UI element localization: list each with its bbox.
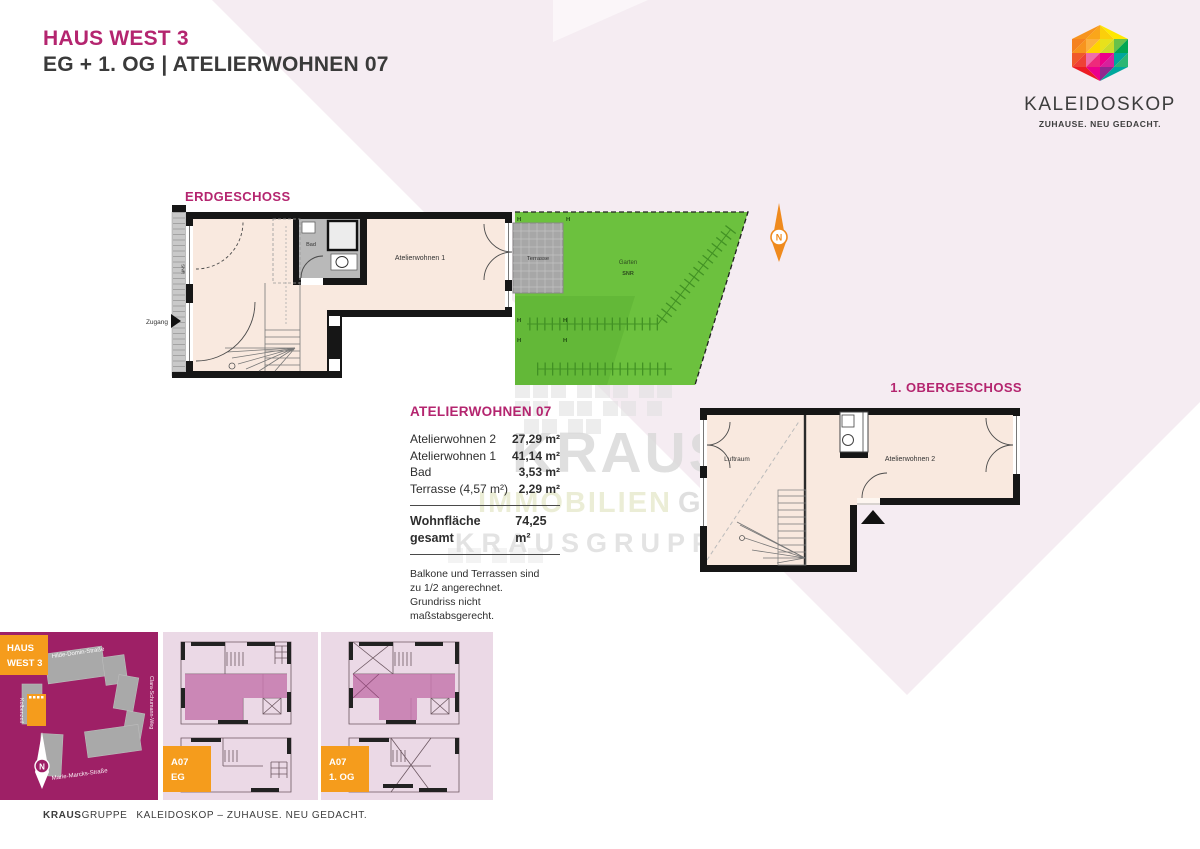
mini-og-badge-line1: A07 bbox=[329, 757, 346, 768]
total-row: Wohnfläche gesamt74,25 m² bbox=[410, 513, 560, 546]
area-table-title: ATELIERWOHNEN 07 bbox=[410, 404, 560, 419]
mini-eg-badge-line1: A07 bbox=[171, 757, 188, 768]
terrace-label: Terrasse bbox=[527, 256, 549, 262]
divider bbox=[410, 505, 560, 506]
room2-label: Atelierwohnen 2 bbox=[885, 456, 935, 463]
svg-text:H: H bbox=[517, 318, 521, 324]
mini-plan-og: A07 1. OG bbox=[321, 632, 493, 800]
row-value: 3,53 m² bbox=[519, 464, 560, 481]
note-line: Grundriss nicht maßstabsgerecht. bbox=[410, 595, 560, 623]
logo-wordmark: KALEIDOSKOP bbox=[1018, 94, 1182, 116]
snr-strip-label: SNR bbox=[180, 264, 186, 275]
svg-text:H: H bbox=[517, 338, 521, 344]
divider bbox=[410, 554, 560, 555]
site-badge-line2: WEST 3 bbox=[7, 658, 42, 669]
kaleidoskop-hexagon-icon bbox=[1068, 25, 1132, 81]
note-line: zu 1/2 angerechnet. bbox=[410, 581, 560, 595]
table-row: Atelierwohnen 141,14 m² bbox=[410, 448, 560, 465]
bathroom: Bad bbox=[299, 219, 360, 278]
snr-strip: SNR bbox=[172, 205, 186, 378]
void-label: Luftraum bbox=[724, 456, 750, 463]
footer: KRAUSGRUPPEKALEIDOSKOP – ZUHAUSE. NEU GE… bbox=[43, 810, 367, 821]
logo-tagline: ZUHAUSE. NEU GEDACHT. bbox=[1018, 119, 1182, 129]
garden-area: Terrasse Garten SNR H H H H H H bbox=[513, 212, 748, 385]
entrance-triangle-icon bbox=[861, 510, 885, 524]
note-line: Balkone und Terrassen sind bbox=[410, 567, 560, 581]
entry-label: Zugang bbox=[146, 319, 168, 326]
svg-text:H: H bbox=[517, 217, 521, 223]
table-row: Atelierwohnen 227,29 m² bbox=[410, 431, 560, 448]
row-value: 41,14 m² bbox=[512, 448, 560, 465]
mini-plan-eg: A07 EG bbox=[163, 632, 318, 800]
svg-text:H: H bbox=[563, 338, 567, 344]
page-title: HAUS WEST 3 bbox=[43, 27, 189, 51]
row-label: Terrasse (4,57 m²) bbox=[410, 481, 508, 498]
footer-brand-rest: GRUPPE bbox=[82, 810, 128, 821]
row-value: 27,29 m² bbox=[512, 431, 560, 448]
kitchen-unit bbox=[840, 412, 868, 452]
svg-text:H: H bbox=[563, 318, 567, 324]
table-notes: Balkone und Terrassen sind zu 1/2 angere… bbox=[410, 567, 560, 623]
row-value: 2,29 m² bbox=[519, 481, 560, 498]
footer-brand-bold: KRAUS bbox=[43, 810, 82, 821]
terrace: Terrasse bbox=[513, 223, 563, 293]
highlighted-building bbox=[27, 694, 46, 726]
row-label: Bad bbox=[410, 464, 431, 481]
eg-floorplan: Terrasse Garten SNR H H H H H H SNR bbox=[135, 196, 795, 411]
page-subtitle: EG + 1. OG | ATELIERWOHNEN 07 bbox=[43, 53, 389, 77]
footer-tagline: KALEIDOSKOP – ZUHAUSE. NEU GEDACHT. bbox=[136, 810, 367, 821]
kaleidoskop-logo: KALEIDOSKOP ZUHAUSE. NEU GEDACHT. bbox=[1018, 25, 1182, 129]
mini-og-badge: A07 1. OG bbox=[321, 746, 369, 792]
mini-eg-badge: A07 EG bbox=[163, 746, 211, 792]
site-badge-line1: HAUS bbox=[7, 643, 34, 654]
site-badge: HAUS WEST 3 bbox=[0, 635, 48, 675]
table-row: Terrasse (4,57 m²)2,29 m² bbox=[410, 481, 560, 498]
row-label: Atelierwohnen 1 bbox=[410, 448, 496, 465]
garden-label: Garten bbox=[619, 260, 637, 266]
total-label: Wohnfläche gesamt bbox=[410, 513, 515, 546]
site-north-label: N bbox=[39, 763, 45, 772]
og-plan-title: 1. OBERGESCHOSS bbox=[830, 380, 1022, 395]
og-floorplan: Luftraum Atelierwohnen 2 bbox=[695, 400, 1035, 585]
mini-og-badge-line2: 1. OG bbox=[329, 772, 354, 783]
street-left: Kolbenzeil bbox=[18, 698, 24, 723]
site-plan: HAUS WEST 3 Hilde-Domin-Straße Clara-Sch… bbox=[0, 632, 158, 800]
mini-eg-badge-line2: EG bbox=[171, 772, 185, 783]
row-label: Atelierwohnen 2 bbox=[410, 431, 496, 448]
north-compass-icon: N bbox=[771, 203, 787, 262]
table-row: Bad3,53 m² bbox=[410, 464, 560, 481]
room1-label: Atelierwohnen 1 bbox=[395, 255, 445, 262]
bathroom-label: Bad bbox=[306, 242, 316, 248]
street-right: Clara-Schumann-Weg bbox=[148, 676, 154, 729]
expose-page: { "header": { "title": "HAUS WEST 3", "s… bbox=[0, 0, 1200, 849]
svg-text:H: H bbox=[566, 217, 570, 223]
total-value: 74,25 m² bbox=[515, 513, 560, 546]
garden-snr-label: SNR bbox=[622, 271, 634, 277]
area-table: ATELIERWOHNEN 07 Atelierwohnen 227,29 m²… bbox=[410, 404, 560, 623]
north-label: N bbox=[776, 233, 783, 243]
